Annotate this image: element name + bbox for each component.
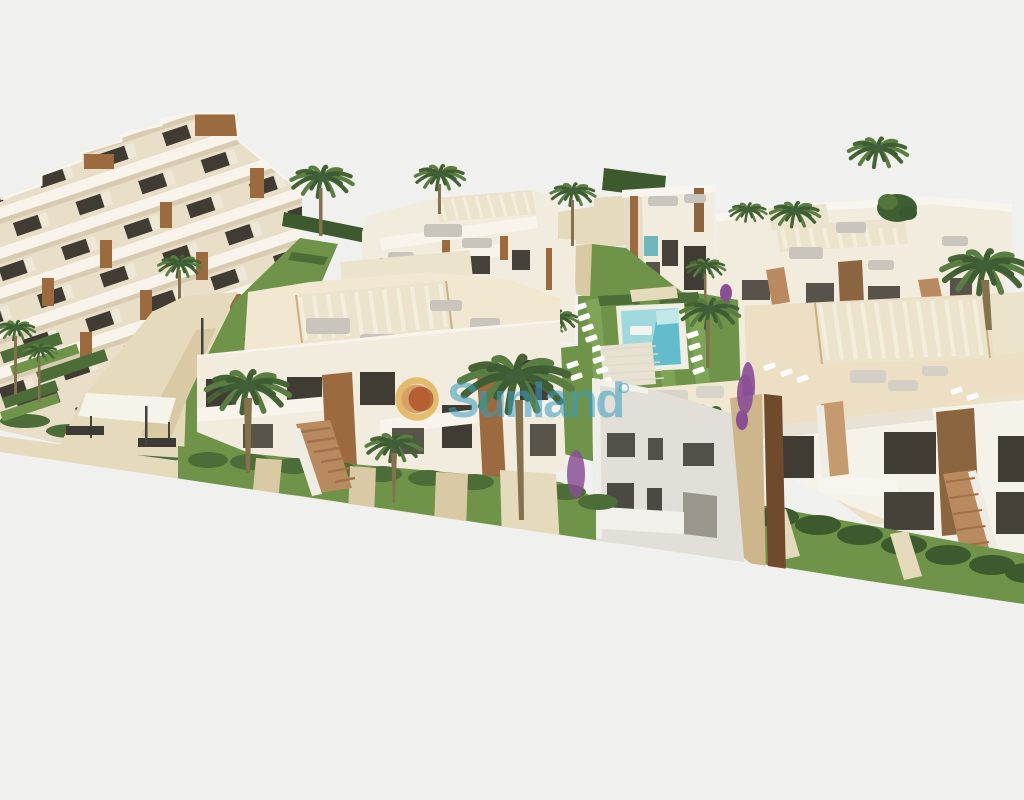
svg-text:Sunland: Sunland [447,374,623,428]
